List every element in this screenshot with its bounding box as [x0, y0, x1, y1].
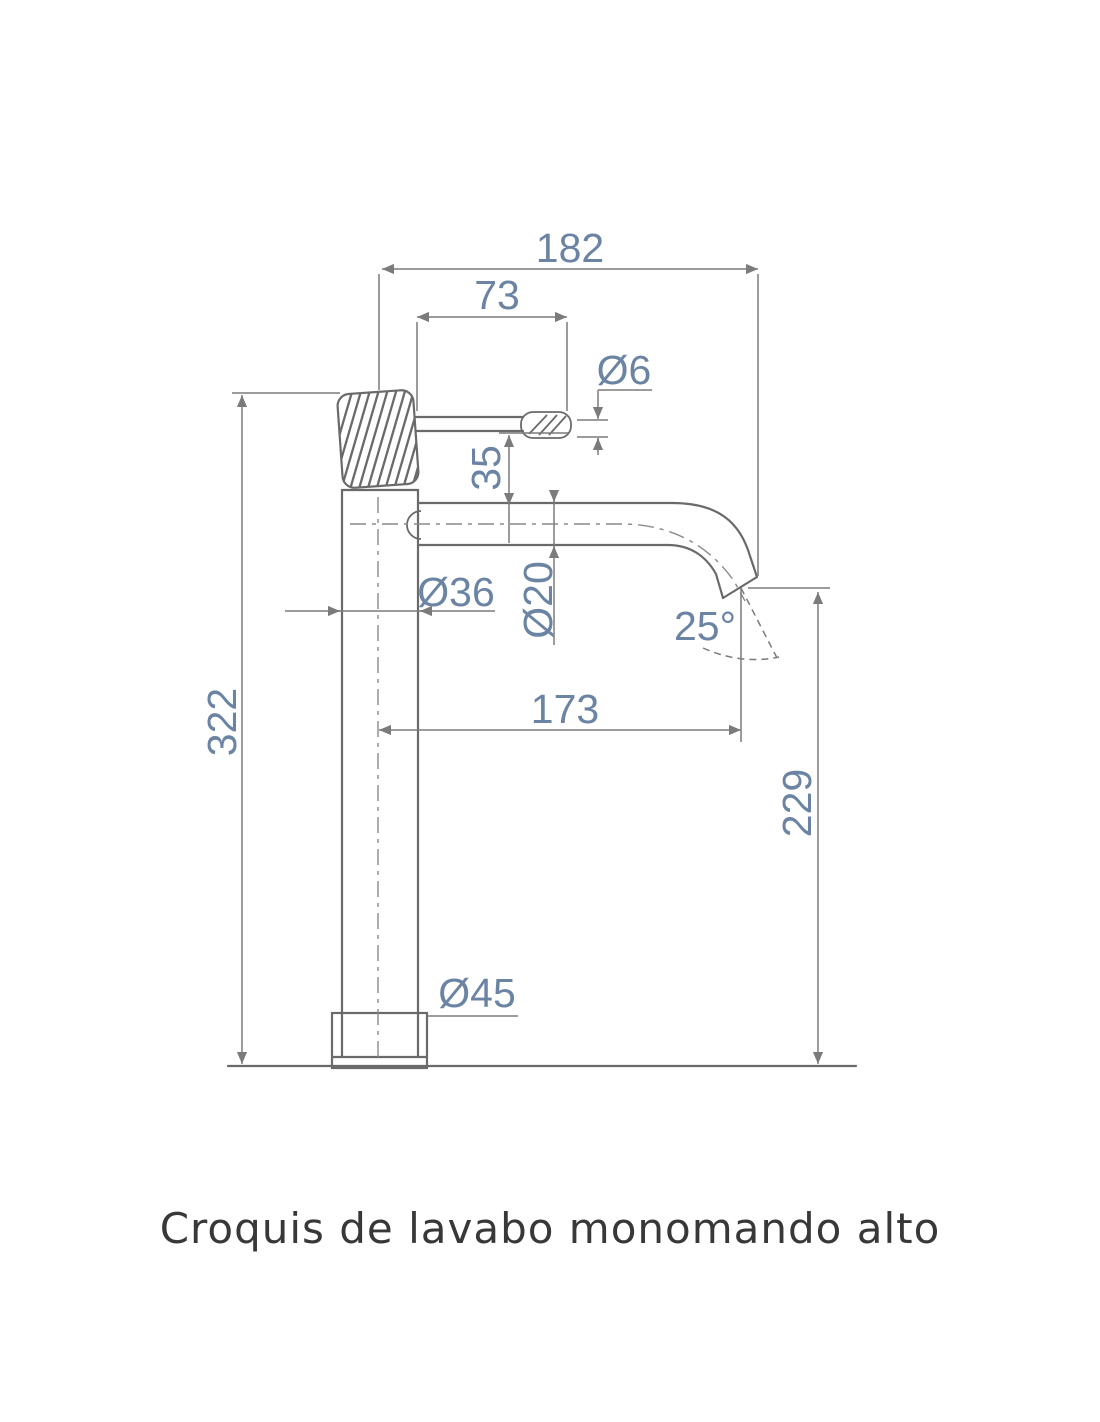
drawing-caption: Croquis de lavabo monomando alto: [0, 1204, 1100, 1253]
dimension-spout-tube-diameter: Ø20: [515, 490, 561, 645]
dim-label-o6: Ø6: [597, 347, 652, 393]
dimension-body-diameter: Ø36: [285, 569, 495, 615]
dimension-total-height: 322: [199, 393, 340, 1064]
dimension-spout-angle: 25°: [674, 588, 779, 742]
dimension-overall-width: 182: [379, 225, 758, 576]
dim-label-o36: Ø36: [417, 569, 495, 615]
dimension-outlet-height: 229: [748, 588, 830, 1064]
dim-label-182: 182: [536, 225, 604, 271]
faucet-technical-drawing-page: 182 73 Ø6 35: [0, 0, 1100, 1422]
dim-label-o20: Ø20: [515, 561, 561, 639]
dimension-base-diameter: Ø45: [427, 970, 518, 1016]
dim-label-73: 73: [474, 272, 520, 318]
handle-knob: [312, 378, 461, 502]
dimension-handle-tip-diameter: Ø6: [577, 347, 652, 455]
dim-label-229: 229: [774, 769, 820, 837]
dimension-handle-to-spout: 35: [463, 433, 568, 543]
dim-label-25deg: 25°: [674, 603, 736, 649]
dim-label-35: 35: [463, 445, 509, 491]
dimension-spout-reach: 173: [379, 686, 741, 732]
handle-lever: [416, 412, 571, 438]
faucet-body: [342, 490, 418, 1057]
dim-label-322: 322: [199, 688, 245, 756]
base-flange: [332, 1013, 427, 1068]
dim-label-o45: Ø45: [438, 970, 516, 1016]
knob-hatching: [312, 378, 461, 502]
dim-label-173: 173: [531, 686, 599, 732]
dimension-handle-length: 73: [417, 272, 567, 411]
